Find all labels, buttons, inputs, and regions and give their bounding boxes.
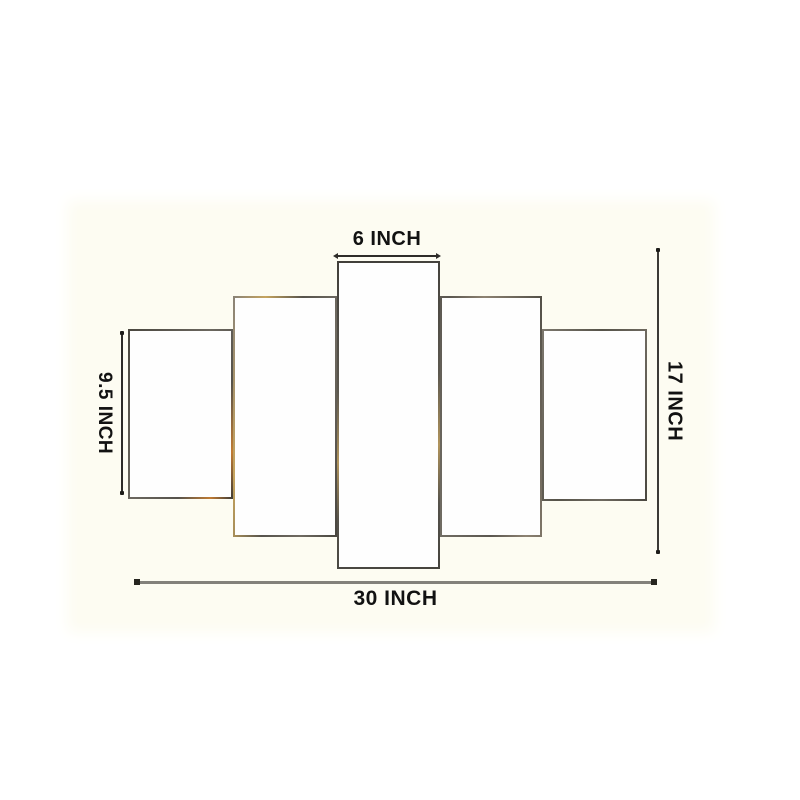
canvas-panel-4 [440,296,542,537]
dimension-line-total-width [136,581,655,584]
canvas-panel-2 [233,296,337,537]
center-panel-width-label: 6 INCH [337,228,437,251]
side-panel-height-label: 9.5 INCH [90,333,118,493]
canvas-panel-5 [542,329,647,501]
total-height-label: 17 INCH [660,250,688,552]
total-width-label: 30 INCH [136,587,655,611]
product-dimension-image: 6 INCH 9.5 INCH 17 INCH 30 INCH [0,0,800,800]
dimension-line-side-panel-height [121,333,123,493]
canvas-panel-3 [337,261,440,569]
dimension-line-total-height [657,250,659,552]
canvas-panel-1 [128,329,233,499]
dimension-line-center-panel-width [337,255,437,257]
